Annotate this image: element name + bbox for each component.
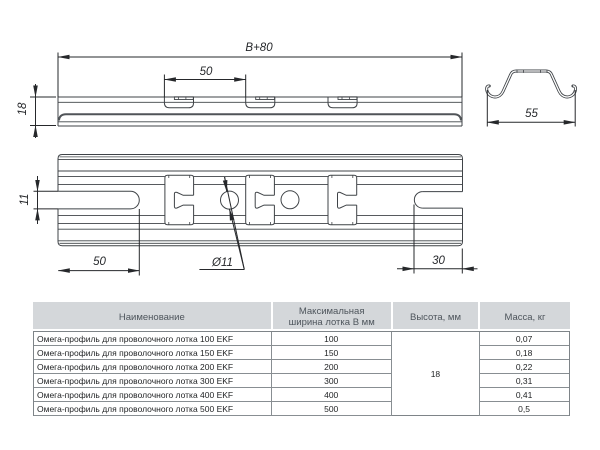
svg-text:55: 55 xyxy=(525,108,538,120)
svg-text:11: 11 xyxy=(19,194,31,206)
svg-text:18: 18 xyxy=(17,102,29,115)
svg-text:30: 30 xyxy=(432,255,445,267)
svg-text:Ø11: Ø11 xyxy=(211,257,233,269)
svg-text:50: 50 xyxy=(93,256,106,268)
svg-text:50: 50 xyxy=(200,66,213,78)
svg-text:B+80: B+80 xyxy=(245,42,273,54)
